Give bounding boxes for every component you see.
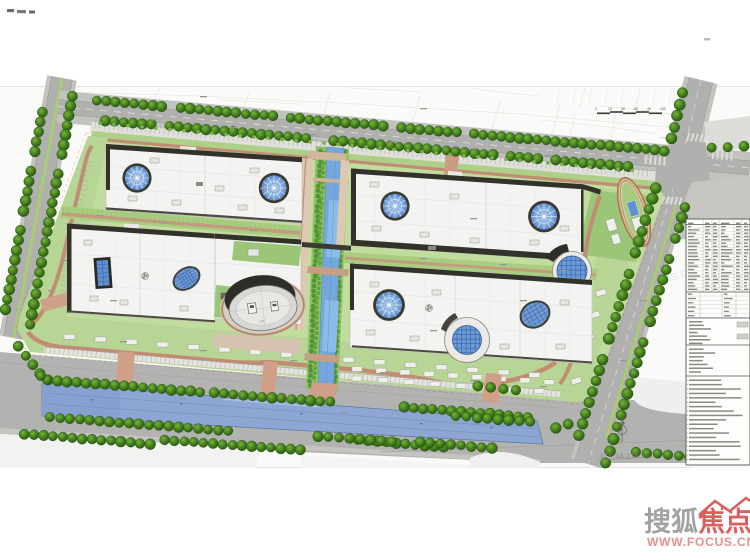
svg-text:40: 40: [647, 107, 651, 111]
svg-text:100: 100: [660, 107, 666, 111]
svg-text:174.18.119: 174.18.119: [600, 454, 640, 460]
svg-text:20: 20: [621, 107, 625, 111]
svg-text:WWW.FOCUS.CN: WWW.FOCUS.CN: [647, 535, 750, 549]
svg-text:0: 0: [595, 107, 597, 111]
svg-text:30: 30: [634, 107, 638, 111]
svg-text:12F: 12F: [259, 319, 265, 324]
svg-text:10: 10: [608, 107, 612, 111]
svg-text:搜狐: 搜狐: [644, 507, 698, 537]
